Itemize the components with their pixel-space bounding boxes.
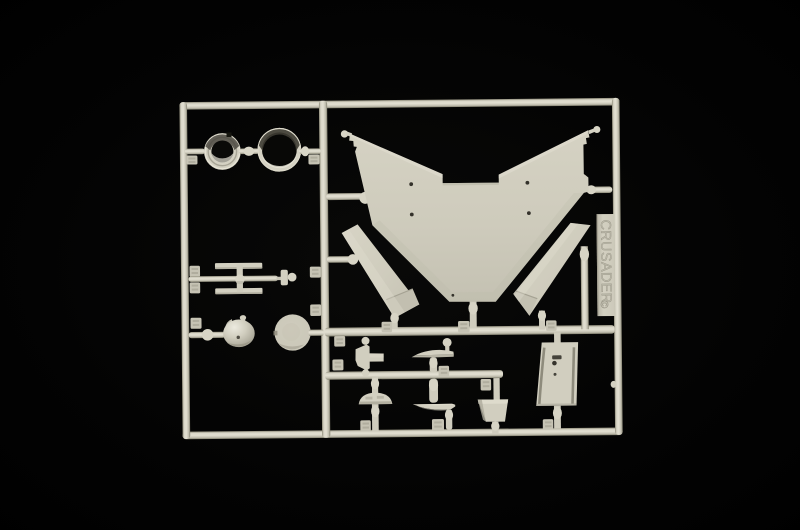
svg-text:CRUSADER: CRUSADER xyxy=(597,219,614,303)
svg-text:©: © xyxy=(598,300,610,308)
